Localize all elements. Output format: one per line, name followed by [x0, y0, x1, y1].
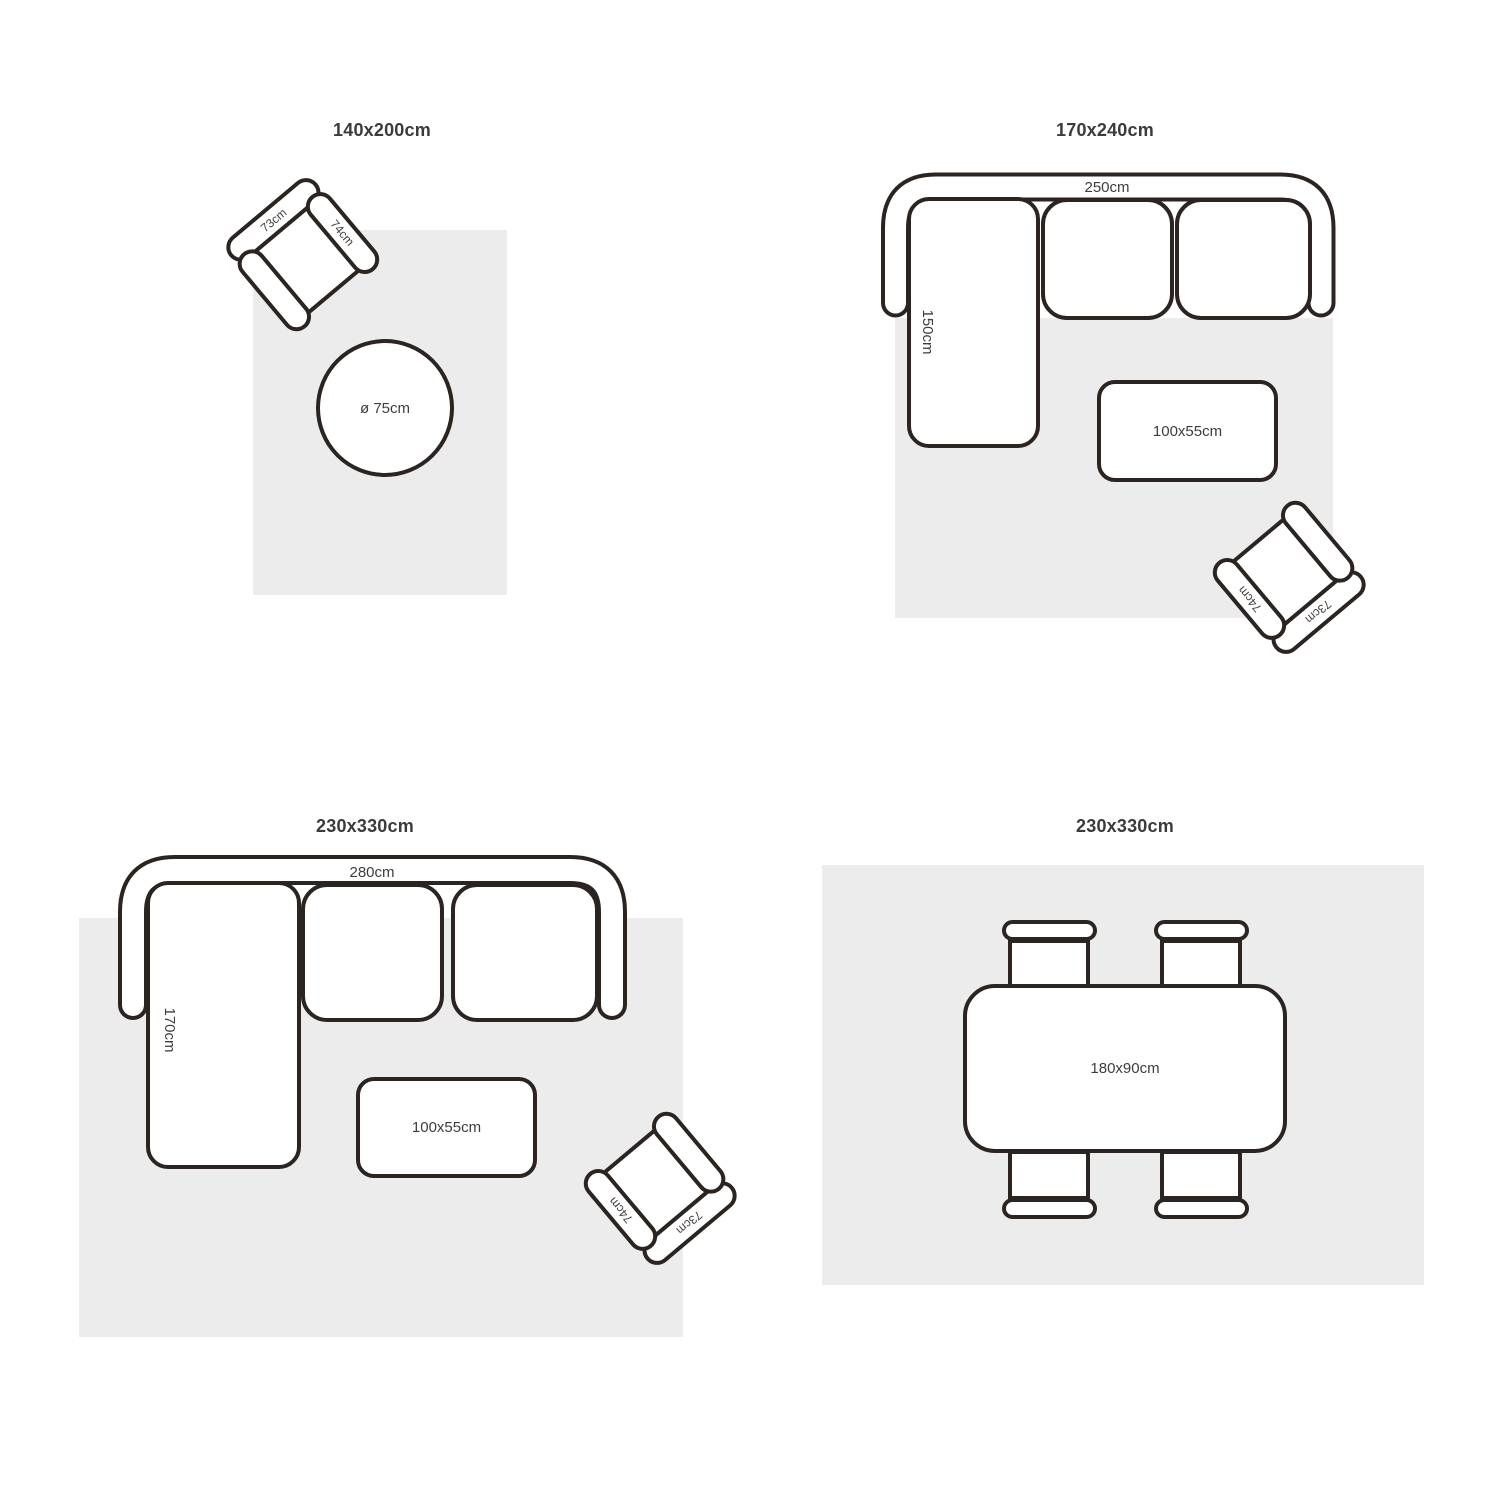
sofa-cushion	[303, 885, 442, 1020]
dining-chair-seat	[1160, 1150, 1242, 1200]
armchair-arm-dim: 74cm	[328, 217, 358, 248]
panel-title-230x330-left: 230x330cm	[215, 816, 515, 837]
sofa-width-dim: 280cm	[349, 864, 394, 881]
panel-title-230x330-right: 230x330cm	[975, 816, 1275, 837]
sofa-cushion	[453, 885, 597, 1020]
sofa-depth-dim: 170cm	[161, 1007, 178, 1052]
dining-table-dim: 180x90cm	[1090, 1060, 1159, 1077]
dining-chair-seat	[1160, 939, 1242, 989]
dining-chair-back	[1002, 1198, 1097, 1219]
dining-table: 180x90cm	[963, 984, 1287, 1153]
dining-chair-back	[1154, 920, 1249, 941]
armchair-back-dim: 73cm	[1303, 597, 1334, 627]
dining-chair-seat	[1008, 1150, 1090, 1200]
coffee-table-dim: 100x55cm	[1153, 423, 1222, 440]
armchair-arm-dim: 74cm	[1235, 583, 1265, 614]
armchair-back-dim: 73cm	[674, 1208, 705, 1238]
dining-chair-back	[1002, 920, 1097, 941]
sofa-cushion	[1177, 200, 1310, 318]
sofa-depth-dim: 150cm	[919, 309, 936, 354]
sofa-width-dim: 250cm	[1084, 179, 1129, 196]
coffee-table: 100x55cm	[1097, 380, 1278, 482]
dining-chair-back	[1154, 1198, 1249, 1219]
coffee-table: 100x55cm	[356, 1077, 537, 1178]
round-table-dim: ø 75cm	[360, 400, 410, 417]
panel-title-170x240: 170x240cm	[955, 120, 1255, 141]
coffee-table-dim: 100x55cm	[412, 1119, 481, 1136]
armchair-arm-dim: 74cm	[606, 1194, 636, 1225]
rug-size-guide: 140x200cm 73cm 74cm ø 75cm 170x240cm 250…	[0, 0, 1500, 1500]
dining-chair-seat	[1008, 939, 1090, 989]
panel-title-140x200: 140x200cm	[232, 120, 532, 141]
round-side-table: ø 75cm	[316, 339, 454, 477]
sofa-cushion	[1043, 200, 1172, 318]
